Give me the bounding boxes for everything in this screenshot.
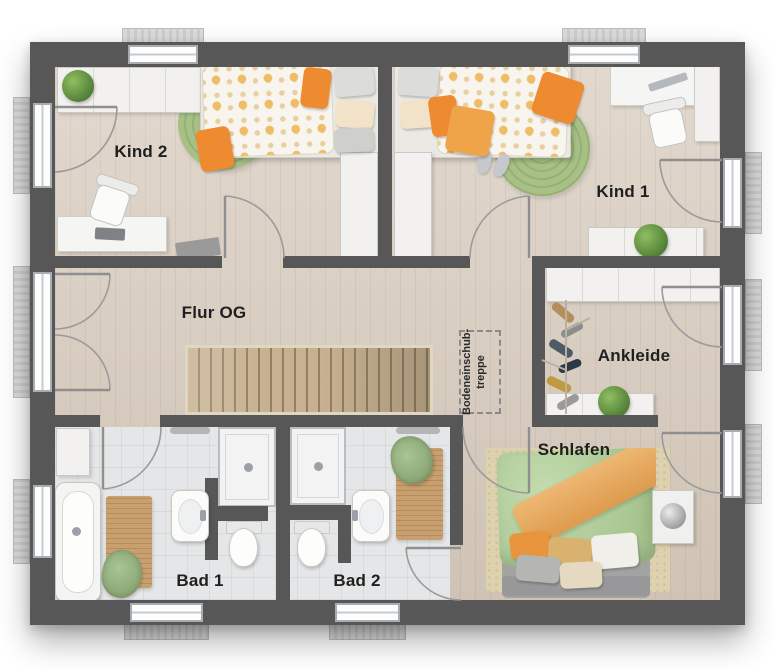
window-sill xyxy=(745,152,762,234)
wall-kind2-kind1 xyxy=(378,67,392,257)
wall-kind1-flur xyxy=(283,256,470,268)
window-sill xyxy=(13,479,30,564)
window-sill xyxy=(745,279,762,371)
wall-bad1-bad2 xyxy=(276,427,290,600)
room-label-kind1: Kind 1 xyxy=(596,182,649,202)
wall-ankleide-west xyxy=(532,268,545,427)
window-right-kind1 xyxy=(723,158,742,228)
attic-hatch-label: Bodeneinschub- treppe xyxy=(460,329,500,415)
window-right-ankleide xyxy=(723,285,742,365)
wall-kind1-ankleide xyxy=(532,256,720,268)
window-top-kind1 xyxy=(568,45,640,64)
room-label-kind2: Kind 2 xyxy=(114,142,167,162)
window-left-bad1 xyxy=(33,485,52,558)
window-sill xyxy=(13,97,30,194)
window-left-kind2 xyxy=(33,103,52,188)
window-right-schlafen xyxy=(723,430,742,498)
attic-hatch-label-line2: treppe xyxy=(474,329,488,415)
attic-hatch-label-line1: Bodeneinschub- xyxy=(460,329,474,415)
room-label-bad2: Bad 2 xyxy=(333,571,380,591)
window-bottom-bad1 xyxy=(130,603,203,622)
room-label-flur: Flur OG xyxy=(182,303,247,323)
window-sill xyxy=(13,266,30,398)
window-sill xyxy=(329,624,406,640)
window-sill xyxy=(745,424,762,504)
window-bottom-bad2 xyxy=(335,603,400,622)
room-label-ankleide: Ankleide xyxy=(598,346,670,366)
wall-flur-bad1-left xyxy=(55,415,100,427)
wall-ankleide-south xyxy=(532,415,658,427)
wall-flur-baths xyxy=(160,415,463,427)
window-top-kind2 xyxy=(128,45,198,64)
room-label-bad1: Bad 1 xyxy=(176,571,223,591)
wall-bad2-schlafen xyxy=(450,427,463,545)
wall-kind2-flur xyxy=(55,256,222,268)
room-label-schlafen: Schlafen xyxy=(538,440,610,460)
floor-plan: Bodeneinschub- treppe Kind 2 Kind 1 Flur… xyxy=(0,0,775,668)
window-left-flur xyxy=(33,272,52,392)
window-sill xyxy=(124,624,209,640)
